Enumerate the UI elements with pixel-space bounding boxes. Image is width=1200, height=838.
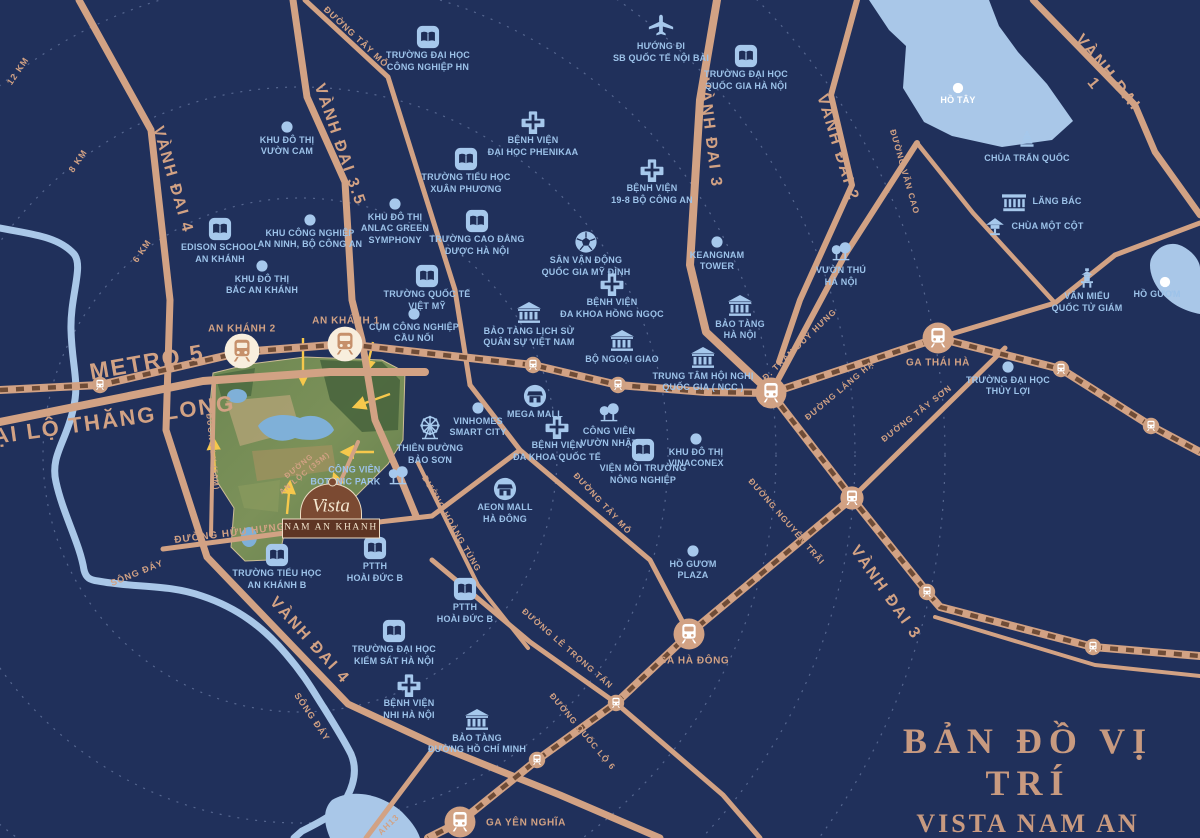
- landmark-label: VINHOMESSMART CITY: [450, 416, 507, 439]
- landmark-label: CHÙA MỘT CỘT: [1012, 221, 1084, 233]
- metro-station-icon: [755, 377, 787, 409]
- landmark-label: VƯỜN THÚHÀ NỘI: [816, 265, 866, 288]
- road-label: METRO 5: [87, 339, 206, 385]
- landmark-label: LĂNG BÁC: [1033, 196, 1082, 208]
- road-label: ĐƯỜNG LÊ TRỌNG TẤN: [520, 607, 615, 691]
- dot-icon: [1002, 361, 1015, 374]
- school-icon: [416, 25, 440, 49]
- landmark-label: BỆNH VIỆNĐA KHOA QUỐC TẾ: [513, 440, 601, 463]
- road-label: ĐƯỜNG HOÀNG TÙNG: [419, 474, 482, 574]
- landmark-label: TRƯỜNG ĐẠI HỌCTHỦY LỢI: [966, 375, 1050, 398]
- metro-station-icon: [1085, 639, 1102, 656]
- park-icon: [597, 401, 622, 425]
- map-subtitle: VISTA NAM AN KHÁNH: [878, 809, 1178, 838]
- road-label: Đ. TRẦN DUY HƯNG: [761, 307, 839, 383]
- hospital-icon: [397, 673, 421, 697]
- location-map: TRƯỜNG ĐẠI HỌCCÔNG NGHIỆP HNHƯỚNG ĐISB Q…: [0, 0, 1200, 838]
- landmark-label: CỤM CÔNG NGHIỆPCẦU NỐI: [369, 322, 459, 345]
- dot-icon: [711, 236, 724, 249]
- road-label: ĐƯỜNG LK (50M): [204, 413, 221, 491]
- metro-station-icon: [673, 618, 705, 650]
- museum-icon: [464, 709, 490, 732]
- map-title-block: BẢN ĐỒ VỊ TRÍ VISTA NAM AN KHÁNH www.sjg…: [878, 720, 1178, 838]
- gate-icon: [1075, 266, 1099, 290]
- park-icon: [386, 464, 411, 488]
- metro-station-icon: [840, 486, 864, 510]
- road-label: ĐƯỜNG VĂN CAO: [887, 128, 921, 215]
- road-label: ĐƯỜNG TÂY SƠN: [880, 383, 954, 444]
- school-icon: [453, 577, 477, 601]
- road-label: ĐƯỜNG NGUYỄN TRÃI: [746, 477, 826, 567]
- road-label: VÀNH ĐAI 1: [1054, 29, 1146, 130]
- landmark-label: PTTHHOÀI ĐỨC B: [347, 561, 403, 584]
- road-label: ĐƯỜNG LÁNG HẠ: [803, 359, 876, 423]
- road-label: VÀNH ĐAI 3.5: [309, 81, 368, 208]
- metro-station-icon: [1053, 361, 1070, 378]
- metro-station-icon: [327, 326, 363, 362]
- museum-icon: [609, 330, 635, 353]
- logo-dome-shape: Vista: [300, 484, 362, 519]
- school-icon: [382, 619, 406, 643]
- dot-icon: [408, 308, 421, 321]
- landmark-label: BẢO TÀNG LỊCH SỬQUÂN SỰ VIỆT NAM: [483, 326, 574, 349]
- school-icon: [415, 264, 439, 288]
- landmark-label: BỆNH VIỆN19-8 BỘ CÔNG AN: [611, 183, 693, 206]
- road-label: ĐƯỜNG TÂY MỖ: [322, 4, 391, 69]
- dot-icon: [256, 260, 269, 273]
- landmark-label: TRƯỜNG QUỐC TẾVIỆT MỸ: [384, 289, 471, 312]
- road-label: 8 KM: [67, 148, 90, 175]
- landmark-label: TRƯỜNG ĐẠI HỌCQUỐC GIA HÀ NỘI: [704, 69, 788, 92]
- landmark-label: BỘ NGOẠI GIAO: [585, 354, 659, 366]
- mall-icon: [493, 477, 517, 501]
- landmark-label: TRUNG TÂM HỘI NGHỊQUỐC GIA ( NCC ): [652, 371, 753, 394]
- landmark-label: HỒ GƯƠMPLAZA: [669, 559, 716, 582]
- landmark-label: HỒ GƯƠM: [1133, 289, 1180, 301]
- road-label: VÀNH ĐAI 4: [265, 594, 353, 689]
- park-icon: [829, 240, 854, 264]
- school-icon: [734, 44, 758, 68]
- road-label: VÀNH ĐAI 3: [846, 542, 925, 643]
- school-icon: [454, 147, 478, 171]
- map-title: BẢN ĐỒ VỊ TRÍ: [878, 720, 1178, 804]
- road-label: ĐẠI LỘ THĂNG LONG: [0, 390, 237, 452]
- road-label: SÔNG ĐÁY: [109, 558, 165, 589]
- plane-icon: [647, 12, 675, 40]
- markers-layer: TRƯỜNG ĐẠI HỌCCÔNG NGHIỆP HNHƯỚNG ĐISB Q…: [0, 0, 1200, 838]
- station-label: AN KHÁNH 1: [312, 316, 380, 327]
- dot-icon: [690, 433, 703, 446]
- dot-icon: [389, 198, 402, 211]
- landmark-label: TRƯỜNG TIỂU HỌCXUÂN PHƯƠNG: [421, 172, 510, 195]
- road-label: 12 KM: [5, 55, 31, 87]
- school-icon: [265, 543, 289, 567]
- landmark-label: TRƯỜNG ĐẠI HỌCCÔNG NGHIỆP HN: [386, 50, 470, 73]
- station-label: GA YÊN NGHĨA: [486, 818, 566, 829]
- dot-icon: [472, 402, 485, 415]
- metro-station-icon: [525, 357, 542, 374]
- landmark-label: HỒ TÂY: [940, 95, 975, 107]
- road-label: VÀNH ĐAI 3: [693, 77, 725, 189]
- metro-station-icon: [922, 322, 954, 354]
- landmark-label: KHU ĐÔ THỊVINACONEX: [668, 447, 723, 470]
- station-label: AN KHÁNH 2: [208, 324, 276, 335]
- station-label: GA THÁI HÀ: [906, 358, 970, 369]
- road-label: VÀNH ĐAI 2: [812, 92, 862, 203]
- hospital-icon: [521, 110, 545, 134]
- landmark-label: CHÙA TRẤN QUỐC: [984, 153, 1069, 165]
- landmark-label: KHU CÔNG NGHIỆPAN NINH, BỘ CÔNG AN: [258, 228, 362, 251]
- museum-icon: [516, 302, 542, 325]
- dot-icon: [687, 545, 700, 558]
- station-label: GA HÀ ĐÔNG: [659, 656, 730, 667]
- road-label: VÀNH ĐAI 4: [148, 124, 196, 235]
- road-label: AH13: [376, 813, 401, 838]
- metro-station-icon: [1143, 418, 1160, 435]
- landmark-label: AEON MALLHÀ ĐÔNG: [477, 502, 532, 525]
- school-icon: [465, 209, 489, 233]
- school-icon: [363, 536, 387, 560]
- ferris-icon: [416, 414, 444, 442]
- road-label: SÔNG ĐÁY: [292, 691, 332, 743]
- dot-icon: [304, 214, 317, 227]
- road-label: 6 KM: [131, 238, 154, 265]
- pagoda-icon: [984, 216, 1007, 239]
- hospital-icon: [545, 415, 569, 439]
- landmark-label: KHU ĐÔ THỊBẮC AN KHÁNH: [226, 274, 298, 297]
- landmark-label: EDISON SCHOOLAN KHÁNH: [181, 242, 259, 265]
- stadium-icon: [574, 230, 598, 254]
- wdot-icon: [952, 82, 964, 94]
- metro-station-icon: [610, 377, 627, 394]
- landmark-label: BẢO TÀNGHÀ NỘI: [715, 319, 765, 342]
- logo-name-text: NAM AN KHANH: [282, 519, 380, 539]
- school-icon: [631, 438, 655, 462]
- hospital-icon: [640, 158, 664, 182]
- landmark-label: KHU ĐÔ THỊVƯỜN CAM: [260, 135, 315, 158]
- landmark-label: THIÊN ĐƯỜNGBẢO SƠN: [397, 443, 464, 466]
- dot-icon: [281, 121, 294, 134]
- landmark-label: TRƯỜNG CAO ĐẲNGDƯỢC HÀ NỘI: [429, 234, 524, 257]
- metro-station-icon: [919, 584, 936, 601]
- metro-station-icon: [224, 333, 260, 369]
- landmark-label: BỆNH VIỆNNHI HÀ NỘI: [383, 698, 435, 721]
- landmark-label: KHU ĐÔ THỊANLAC GREENSYMPHONY: [361, 212, 429, 247]
- landmark-label: TRƯỜNG ĐẠI HỌCKIỂM SÁT HÀ NỘI: [352, 644, 436, 667]
- metro-station-icon: [444, 806, 476, 838]
- landmark-label: TRƯỜNG TIỂU HỌCAN KHÁNH B: [232, 568, 321, 591]
- metro-station-icon: [529, 752, 546, 769]
- logo-script-text: Vista: [312, 497, 350, 519]
- school-icon: [208, 217, 232, 241]
- museum-icon: [690, 347, 716, 370]
- stupa-icon: [1018, 130, 1036, 152]
- metro-station-icon: [608, 695, 625, 712]
- landmark-label: HƯỚNG ĐISB QUỐC TẾ NỘI BÀI: [613, 41, 709, 64]
- landmark-label: BẢO TÀNGĐƯỜNG HỒ CHÍ MINH: [428, 733, 526, 756]
- landmark-label: PTTHHOÀI ĐỨC B: [437, 602, 493, 625]
- hospital-icon: [600, 272, 624, 296]
- landmark-label: BỆNH VIỆNĐA KHOA HỒNG NGỌC: [560, 297, 664, 320]
- road-label: ĐƯỜNG QUỐC LỘ 6: [547, 692, 617, 773]
- landmark-label: KEANGNAMTOWER: [690, 250, 745, 273]
- museum-icon: [727, 295, 753, 318]
- mall-icon: [523, 384, 547, 408]
- landmark-label: BỆNH VIỆNĐẠI HỌC PHENIKAA: [488, 135, 579, 158]
- project-logo: Vista NAM AN KHANH: [282, 484, 380, 539]
- mausoleum-icon: [1001, 191, 1028, 214]
- wdot-icon: [1159, 276, 1171, 288]
- landmark-label: VĂN MIẾUQUỐC TỬ GIÁM: [1052, 291, 1123, 314]
